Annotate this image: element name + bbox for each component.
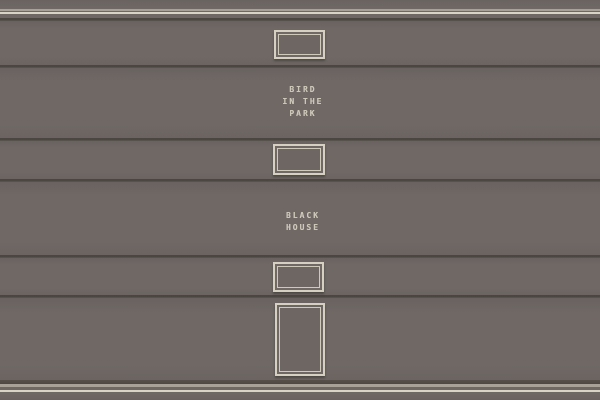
picture-frame-middle-inner — [277, 148, 321, 171]
wall-strip-top — [0, 0, 600, 9]
painting-title-black-house[interactable]: BLACK HOUSE — [3, 210, 600, 234]
top-molding-cream-line — [0, 12, 600, 14]
picture-frame-middle[interactable] — [273, 144, 325, 175]
wall-strip-bottom — [0, 392, 600, 400]
picture-frame-lower-inner — [277, 266, 320, 288]
picture-frame-top[interactable] — [274, 30, 325, 59]
picture-frame-tall[interactable] — [275, 303, 325, 376]
picture-frame-lower[interactable] — [273, 262, 324, 292]
painting-title-bird-in-the-park[interactable]: BIRD IN THE PARK — [3, 84, 600, 120]
paneled-wall-scene: BIRD IN THE PARK BLACK HOUSE — [0, 0, 600, 400]
picture-frame-tall-inner — [279, 307, 321, 372]
picture-frame-top-inner — [278, 34, 321, 55]
top-molding-gray-line — [0, 9, 600, 11]
